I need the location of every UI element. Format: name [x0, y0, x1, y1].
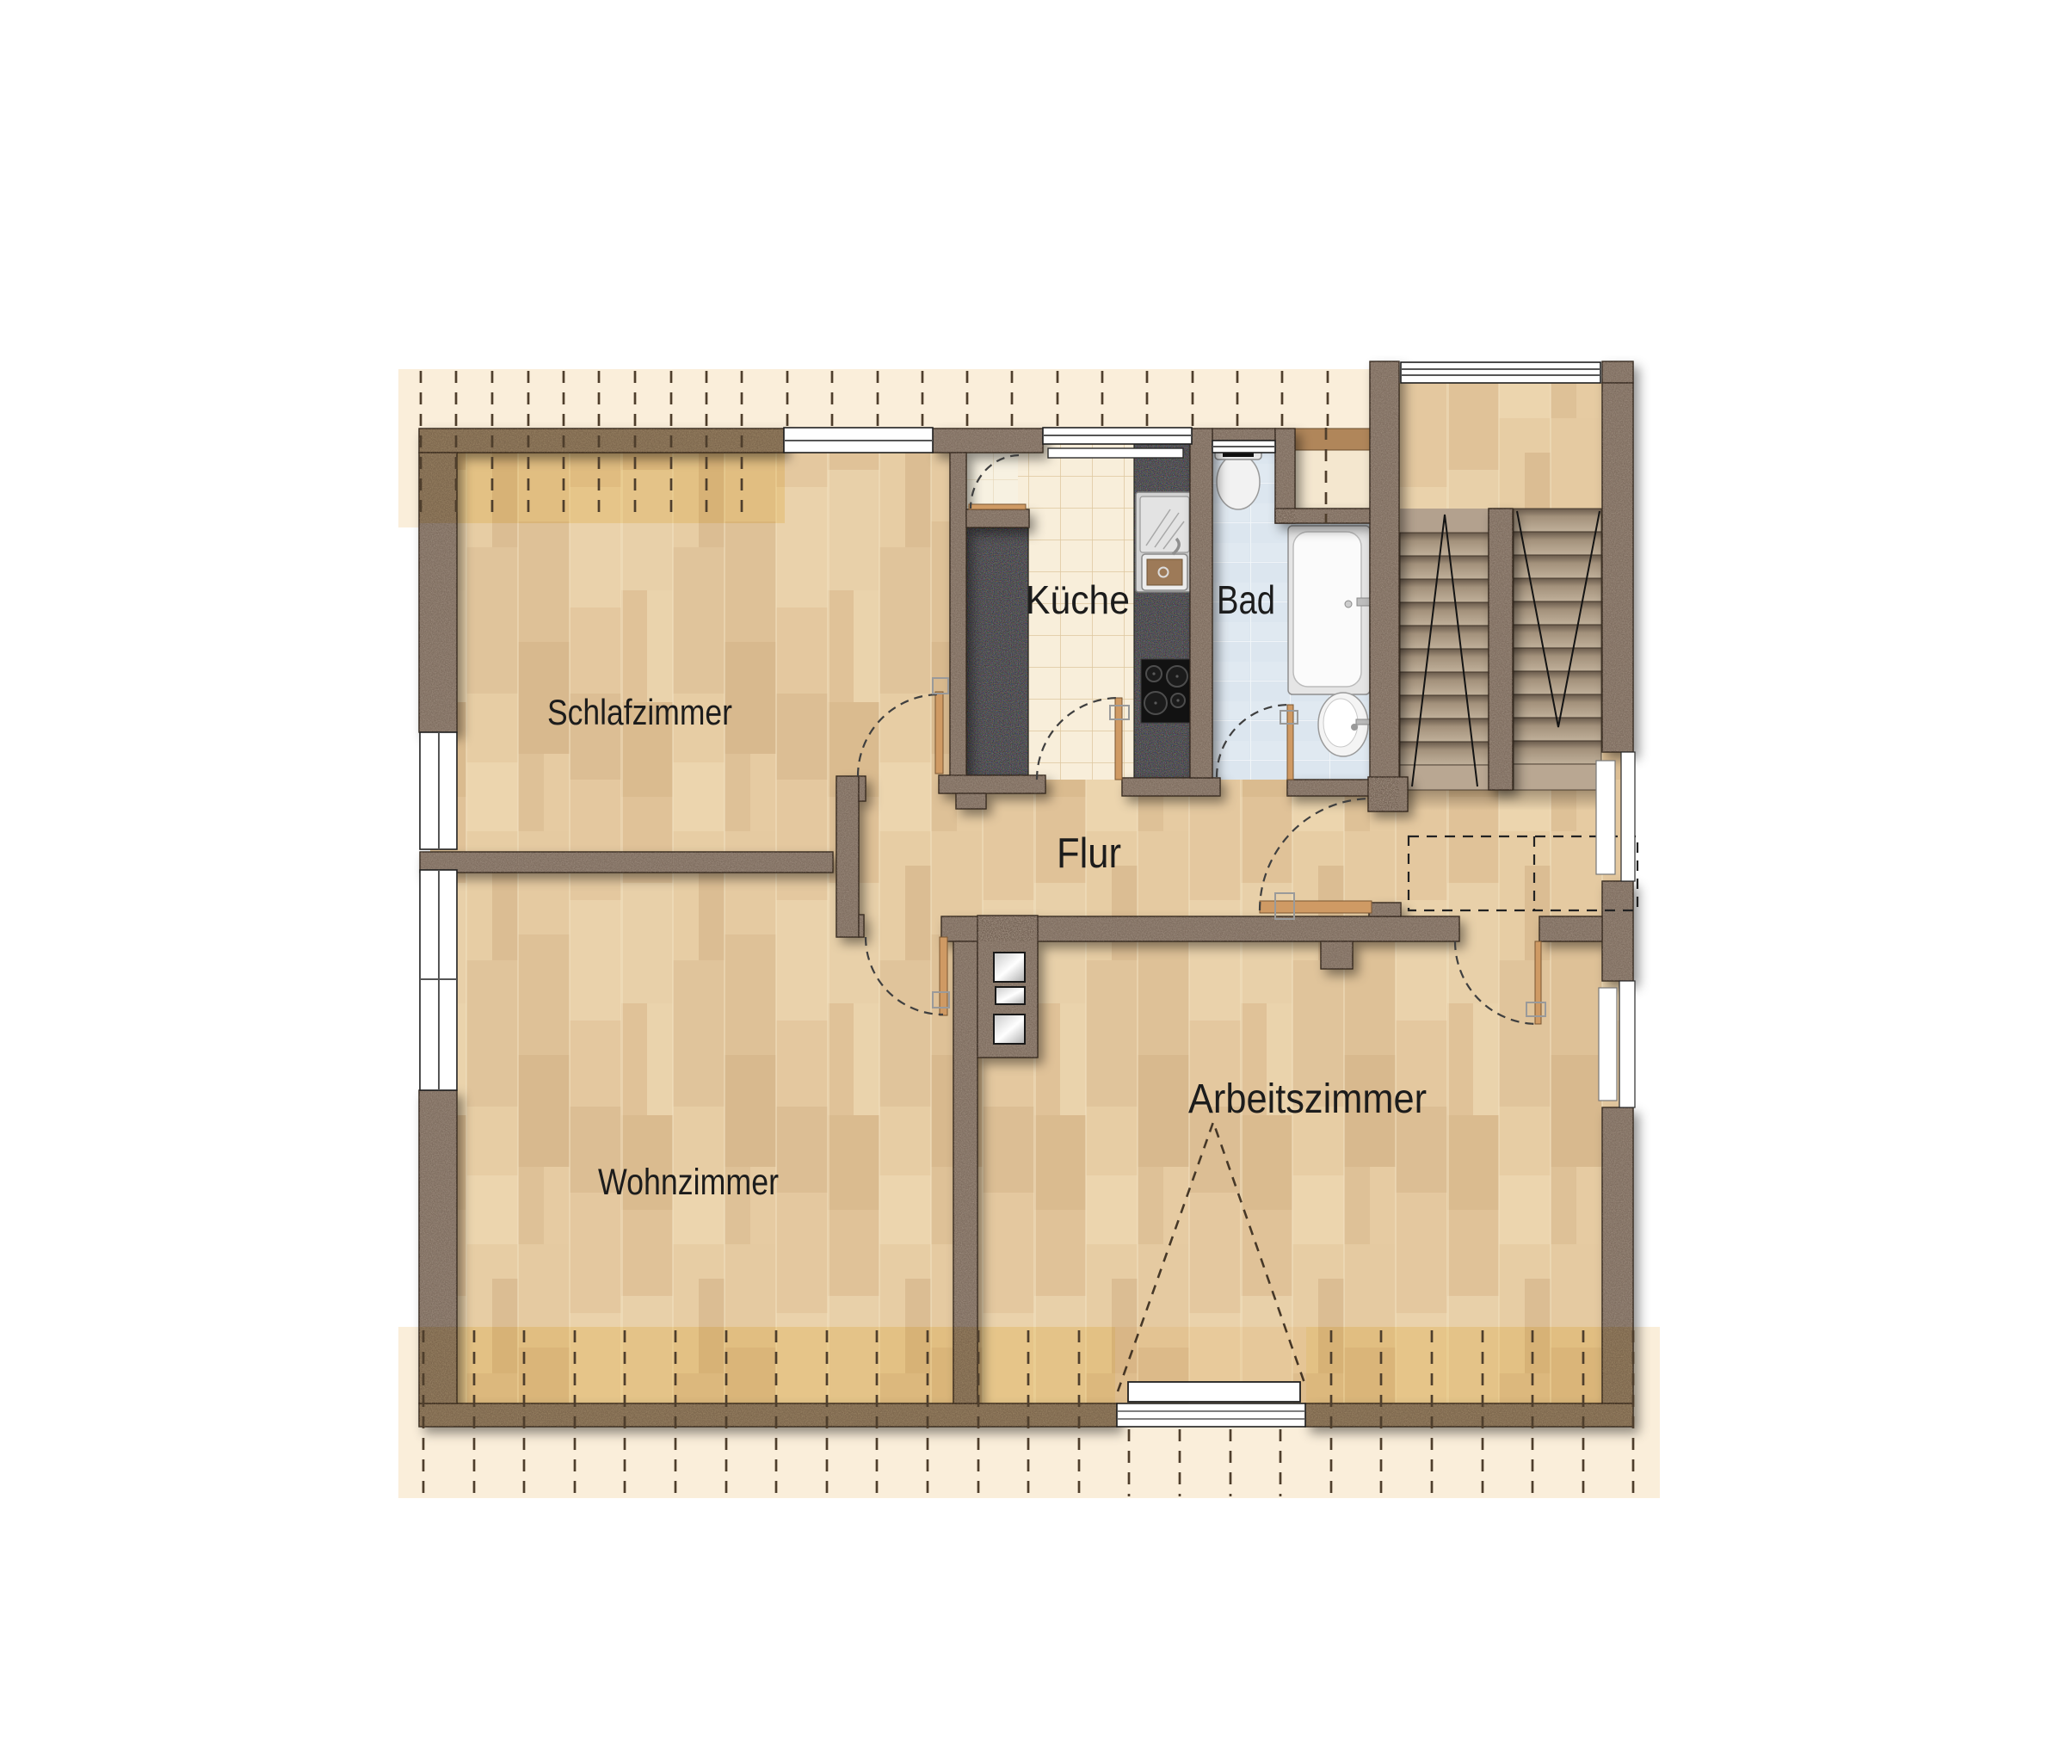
svg-text:Küche: Küche	[1026, 577, 1130, 622]
svg-text:Flur: Flur	[1057, 830, 1121, 877]
svg-text:Wohnzimmer: Wohnzimmer	[598, 1162, 779, 1203]
svg-text:Arbeitszimmer: Arbeitszimmer	[1188, 1076, 1427, 1122]
svg-text:Bad: Bad	[1217, 577, 1275, 622]
svg-text:Schlafzimmer: Schlafzimmer	[547, 692, 732, 732]
